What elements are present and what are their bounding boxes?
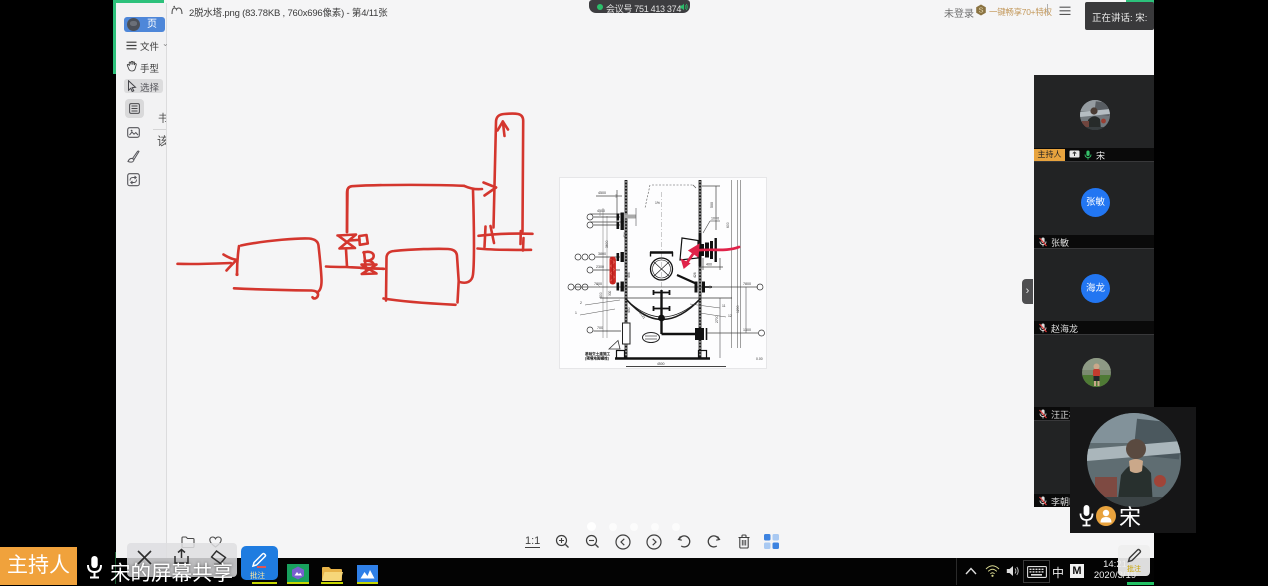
svg-text:2: 2 bbox=[580, 301, 582, 305]
svg-text:基础交土建施工: 基础交土建施工 bbox=[584, 351, 611, 356]
svg-text:7800: 7800 bbox=[594, 282, 602, 286]
svg-text:456: 456 bbox=[627, 272, 631, 278]
svg-text:3800: 3800 bbox=[598, 252, 606, 256]
svg-text:(预埋地脚螺栓): (预埋地脚螺栓) bbox=[585, 356, 610, 361]
svg-text:11: 11 bbox=[722, 304, 726, 308]
svg-text:7800: 7800 bbox=[743, 282, 751, 286]
svg-text:426: 426 bbox=[693, 272, 697, 278]
svg-text:600: 600 bbox=[726, 222, 730, 228]
svg-text:500: 500 bbox=[710, 202, 714, 208]
svg-text:1300: 1300 bbox=[743, 328, 751, 332]
svg-text:2300: 2300 bbox=[596, 265, 604, 269]
svg-text:400: 400 bbox=[706, 263, 712, 267]
svg-text:300: 300 bbox=[608, 290, 612, 296]
svg-text:4500: 4500 bbox=[657, 362, 665, 366]
svg-text:0.00: 0.00 bbox=[756, 357, 763, 361]
svg-text:2700: 2700 bbox=[715, 315, 719, 323]
svg-text:1200: 1200 bbox=[736, 305, 740, 313]
svg-text:3600: 3600 bbox=[605, 240, 609, 248]
svg-text:434: 434 bbox=[623, 232, 627, 238]
svg-text:1%: 1% bbox=[655, 201, 660, 205]
svg-text:12: 12 bbox=[728, 314, 732, 318]
svg-text:4500: 4500 bbox=[598, 191, 606, 195]
svg-text:4500: 4500 bbox=[597, 209, 605, 213]
svg-text:1: 1 bbox=[575, 311, 577, 315]
svg-text:700: 700 bbox=[597, 326, 603, 330]
svg-text:450: 450 bbox=[627, 307, 631, 313]
svg-text:R2121: R2121 bbox=[637, 309, 646, 320]
svg-text:500: 500 bbox=[599, 292, 603, 298]
svg-text:10=0: 10=0 bbox=[711, 217, 719, 221]
